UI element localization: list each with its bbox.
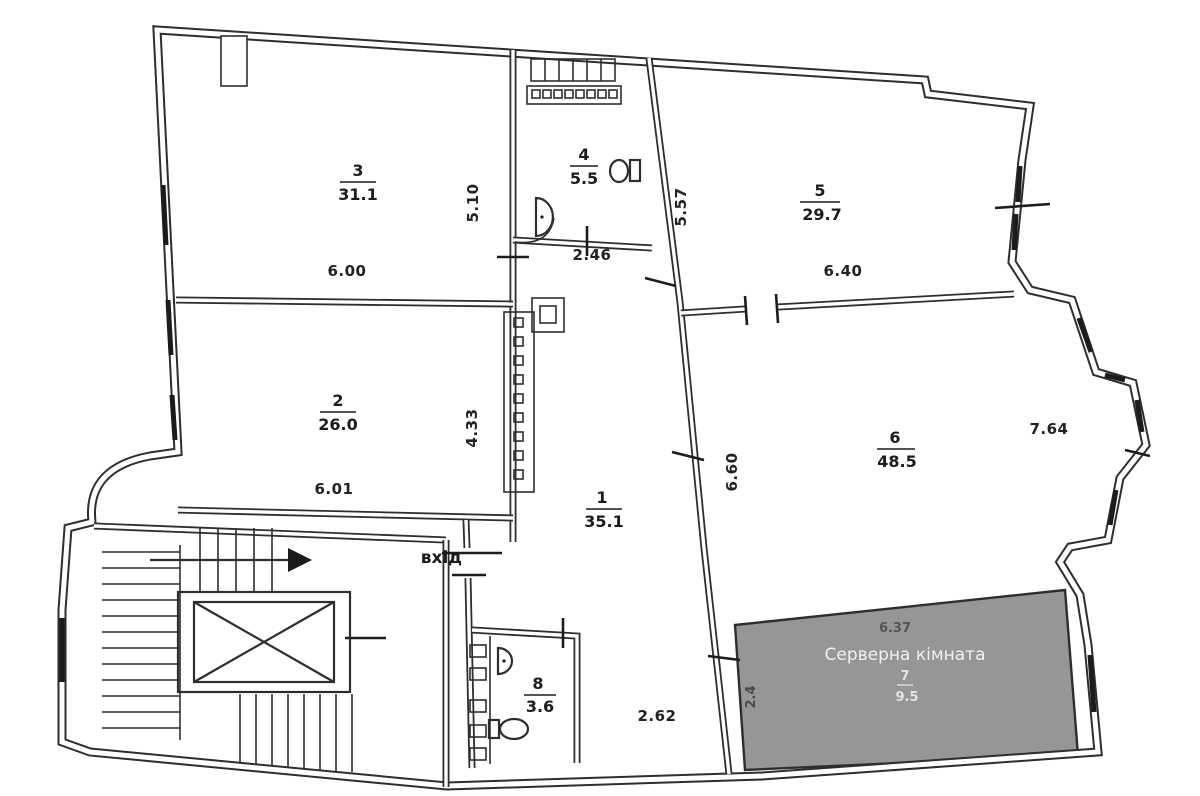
- vent-shafts: [470, 59, 621, 764]
- room-1-number: 1: [596, 488, 607, 507]
- room-6-area: 48.5: [877, 452, 916, 471]
- room-6-number: 6: [889, 428, 900, 447]
- toilet-icon-2: [489, 719, 528, 739]
- floor-plan-canvas: 3 31.1 4 5.5 5 29.7 2 26.0 1 35.1 6 48.5: [0, 0, 1200, 796]
- server-room-name: Серверна кімната: [825, 645, 986, 665]
- room-4-area: 5.5: [570, 169, 598, 188]
- dim-server-height: 2.4: [744, 685, 759, 708]
- floor-plan-drawing: 3 31.1 4 5.5 5 29.7 2 26.0 1 35.1 6 48.5: [0, 0, 1200, 796]
- dim-room4-width: 2.46: [572, 246, 611, 264]
- sink-icon: [515, 198, 554, 243]
- dim-room3-width: 6.00: [327, 262, 366, 280]
- dim-corridor-height: 5.57: [672, 187, 690, 226]
- room-2-label: 2 26.0: [318, 391, 357, 434]
- room-4-label: 4 5.5: [570, 145, 598, 188]
- toilet-icon: [610, 160, 640, 182]
- room-1-area: 35.1: [584, 512, 623, 531]
- room-2-number: 2: [332, 391, 343, 410]
- room-3-number: 3: [352, 161, 363, 180]
- entrance-label: вхід: [421, 548, 462, 568]
- window-left-1: [163, 185, 166, 245]
- dim-server-width: 6.37: [879, 621, 911, 636]
- room-8-label: 8 3.6: [524, 674, 556, 716]
- stair-direction-arrow: [288, 548, 312, 572]
- dim-room5-width: 6.40: [823, 262, 862, 280]
- room-5-number: 5: [814, 181, 825, 200]
- room-8-area: 3.6: [526, 697, 554, 716]
- server-room-number: 7: [900, 669, 909, 684]
- dim-room2-width: 6.01: [314, 480, 353, 498]
- room-4-number: 4: [578, 145, 589, 164]
- dim-room2-height: 4.33: [463, 408, 481, 447]
- server-room-area-value: 9.5: [895, 690, 918, 705]
- window-right-2: [1014, 214, 1016, 250]
- staircase: [102, 528, 352, 772]
- room-1-label: 1 35.1: [584, 488, 623, 531]
- room-6-label: 6 48.5: [877, 428, 917, 471]
- room-3-label: 3 31.1: [338, 161, 377, 204]
- top-wall-notch: [221, 36, 247, 86]
- room-3-area: 31.1: [338, 185, 377, 204]
- window-right-1: [1018, 166, 1020, 202]
- window-left-2: [168, 300, 171, 355]
- dim-hall-width: 2.62: [637, 707, 676, 725]
- dim-room3-height: 5.10: [464, 183, 482, 222]
- dim-room6-height: 6.60: [723, 452, 741, 491]
- room-8-number: 8: [532, 674, 543, 693]
- room-2-area: 26.0: [318, 415, 357, 434]
- room-5-label: 5 29.7: [800, 181, 842, 224]
- stair-treads-upper: [150, 528, 312, 592]
- stair-treads-left: [102, 545, 180, 740]
- room-5-area: 29.7: [802, 205, 841, 224]
- elevator: [178, 592, 350, 692]
- sink-icon-2: [498, 648, 512, 674]
- window-left-3: [172, 395, 175, 440]
- dim-room6-width: 7.64: [1029, 420, 1068, 438]
- stair-treads-lower: [240, 694, 352, 772]
